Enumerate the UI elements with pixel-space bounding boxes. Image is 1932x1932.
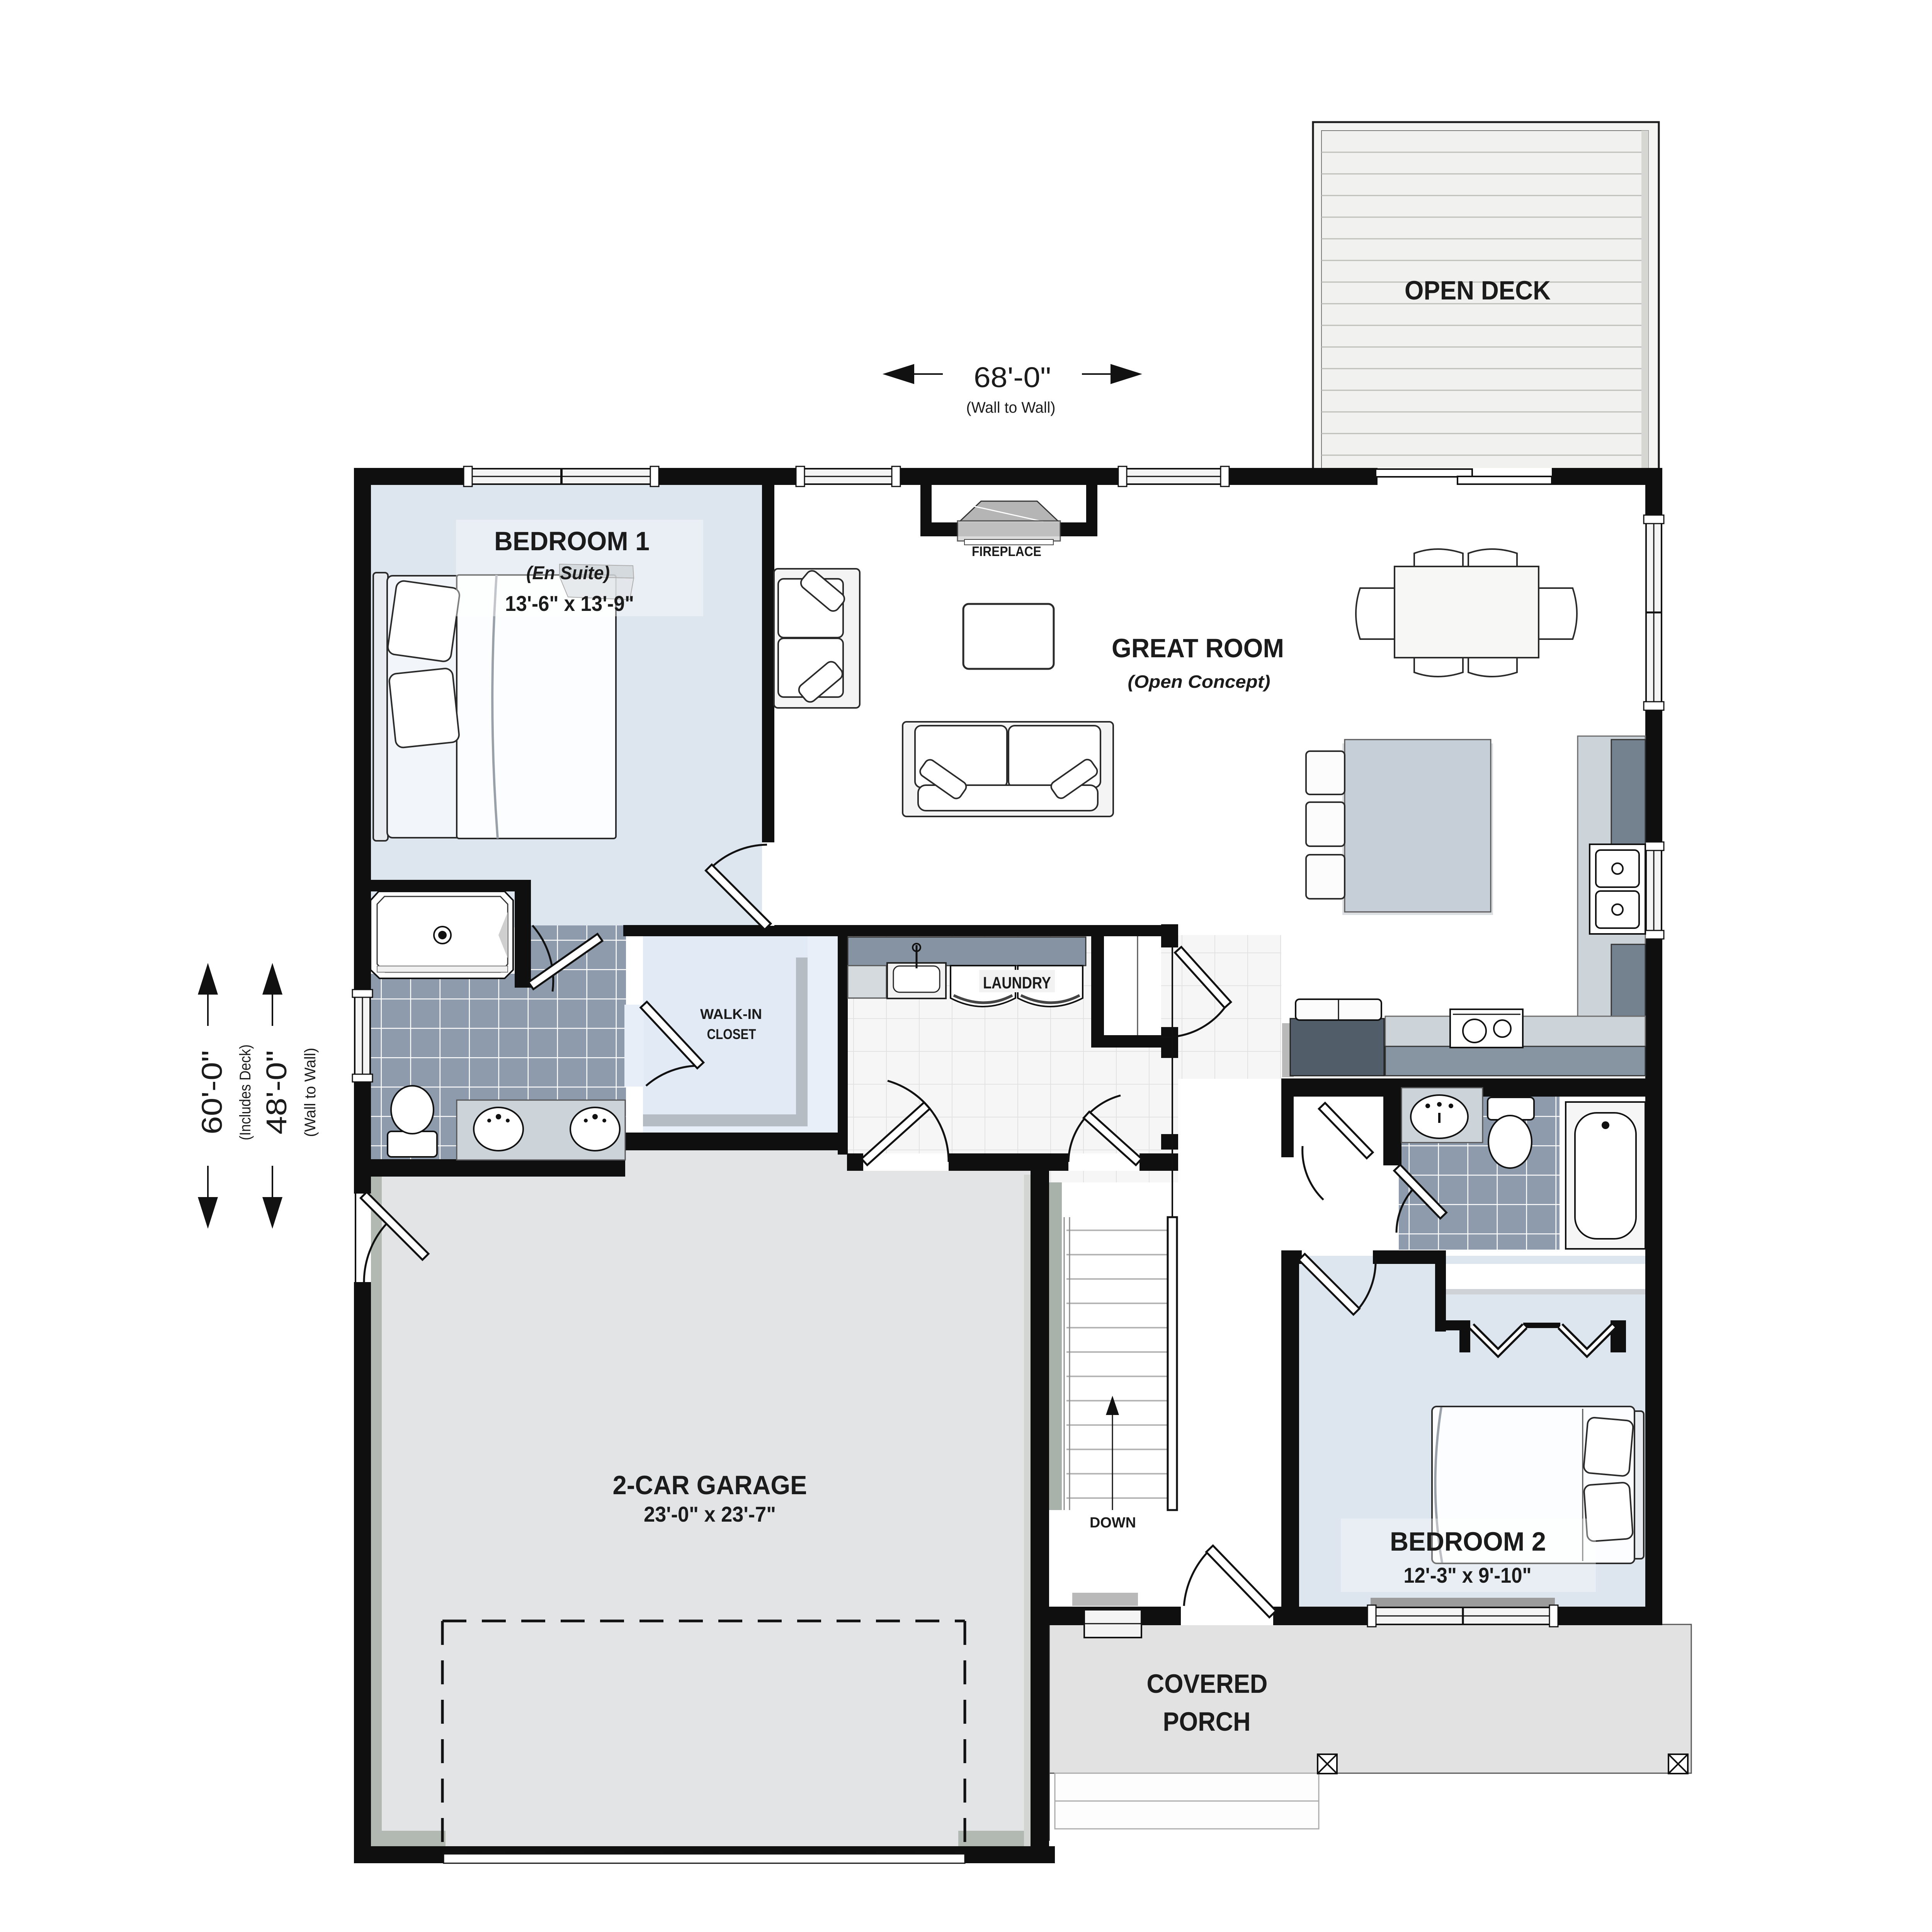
svg-text:2-CAR GARAGE: 2-CAR GARAGE (613, 1470, 807, 1500)
svg-text:(Includes Deck): (Includes Deck) (237, 1044, 254, 1140)
svg-text:BEDROOM 2: BEDROOM 2 (1390, 1527, 1546, 1556)
svg-text:LAUNDRY: LAUNDRY (983, 974, 1051, 992)
svg-text:GREAT ROOM: GREAT ROOM (1112, 633, 1284, 663)
svg-text:68'-0": 68'-0" (974, 361, 1051, 393)
svg-text:12'-3" x 9'-10": 12'-3" x 9'-10" (1404, 1563, 1532, 1587)
svg-text:PORCH: PORCH (1163, 1707, 1251, 1736)
svg-text:COVERED: COVERED (1147, 1669, 1268, 1699)
svg-text:DOWN: DOWN (1090, 1515, 1136, 1531)
svg-text:48'-0": 48'-0" (260, 1050, 293, 1134)
svg-text:FIREPLACE: FIREPLACE (972, 544, 1041, 559)
svg-text:13'-6" x 13'-9": 13'-6" x 13'-9" (505, 591, 634, 616)
svg-text:(Open Concept): (Open Concept) (1128, 672, 1270, 692)
svg-text:60'-0": 60'-0" (196, 1050, 228, 1134)
svg-text:(Wall to Wall): (Wall to Wall) (966, 399, 1056, 416)
svg-text:OPEN DECK: OPEN DECK (1405, 276, 1551, 305)
svg-text:23'-0" x 23'-7": 23'-0" x 23'-7" (644, 1502, 776, 1526)
svg-text:CLOSET: CLOSET (707, 1026, 756, 1042)
svg-text:(Wall to Wall): (Wall to Wall) (302, 1048, 319, 1137)
svg-text:(En Suite): (En Suite) (526, 563, 610, 583)
svg-text:WALK-IN: WALK-IN (700, 1006, 762, 1022)
svg-text:BEDROOM 1: BEDROOM 1 (494, 526, 650, 556)
